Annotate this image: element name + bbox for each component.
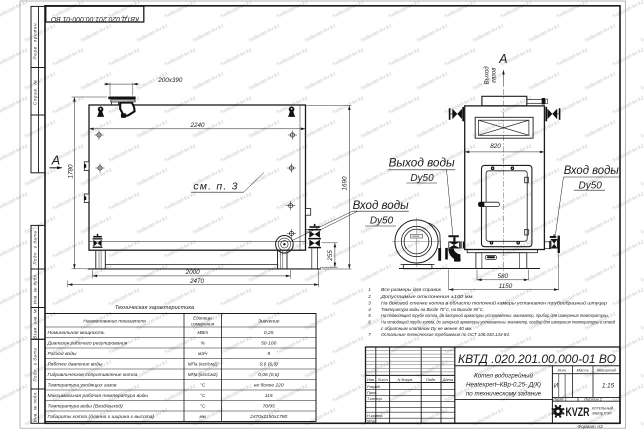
svg-text:Лит.: Лит. [557, 368, 567, 373]
svg-text:Лист: Лист [377, 377, 389, 382]
svg-text:Листов 2: Листов 2 [583, 397, 603, 402]
svg-text:Разраб.: Разраб. [367, 384, 381, 389]
svg-text:Единицы: Единицы [193, 316, 213, 321]
svg-text:см. п. 3: см. п. 3 [193, 181, 238, 193]
svg-text:1780: 1780 [68, 164, 75, 179]
svg-text:Dy50: Dy50 [370, 215, 394, 226]
svg-text:Расход воды: Расход воды [48, 351, 77, 357]
svg-text:Изм: Изм [367, 377, 375, 382]
svg-text:70/95: 70/95 [263, 404, 276, 410]
svg-text:Значение: Значение [258, 319, 280, 325]
svg-text:Техническая характеристика: Техническая характеристика [115, 305, 194, 311]
svg-text:мм: мм [200, 414, 207, 419]
svg-text:Все размеры для справок: Все размеры для справок [381, 287, 442, 292]
svg-text:580: 580 [497, 273, 508, 280]
svg-text:1150: 1150 [499, 283, 513, 290]
svg-text:1: 1 [368, 287, 371, 292]
svg-text:КВТД.020.201.00.000-01 ВО: КВТД.020.201.00.000-01 ВО [50, 15, 139, 22]
svg-text:Котел водогрейный: Котел водогрейный [474, 372, 533, 379]
svg-text:0,6 (6,0): 0,6 (6,0) [260, 362, 279, 368]
svg-text:0,25: 0,25 [264, 330, 274, 336]
svg-text:МПа (кгс/см2): МПа (кгс/см2) [188, 362, 218, 367]
svg-text:1:15: 1:15 [602, 383, 615, 390]
svg-text:Рабочее давление воды: Рабочее давление воды [48, 362, 103, 368]
svg-text:255: 255 [327, 250, 334, 262]
svg-text:2000: 2000 [185, 269, 201, 276]
svg-text:5: 5 [368, 313, 371, 318]
svg-text:3: 3 [368, 301, 371, 306]
svg-text:м3/ч: м3/ч [198, 351, 208, 356]
svg-text:На отводящей трубе котла, до з: На отводящей трубе котла, до запорной ар… [381, 319, 615, 325]
svg-text:°С: °С [200, 404, 206, 409]
svg-text:Н.контр.: Н.контр. [367, 413, 383, 418]
svg-text:115: 115 [265, 393, 273, 399]
svg-text:Температура уходящих газов: Температура уходящих газов [48, 383, 117, 389]
svg-text:Выход воды: Выход воды [389, 158, 456, 170]
svg-text:Температура воды (Вход/выход): Температура воды (Вход/выход) [48, 404, 124, 410]
svg-text:Перв. примен.: Перв. примен. [33, 21, 38, 60]
svg-text:не более 220: не более 220 [254, 383, 284, 389]
svg-text:Выход: Выход [485, 66, 491, 85]
svg-text:газов: газов [492, 68, 498, 83]
svg-text:Инв. № подл.: Инв. № подл. [33, 391, 38, 422]
svg-text:N докум.: N докум. [398, 377, 414, 382]
svg-text:Максимальная рабочая температу: Максимальная рабочая температура воды [48, 393, 149, 399]
svg-text:Подп.: Подп. [426, 377, 436, 382]
svg-text:Взам. инв. №: Взам. инв. № [33, 308, 38, 338]
svg-text:ЗАВОД РЭП: ЗАВОД РЭП [592, 411, 612, 415]
svg-text:2: 2 [367, 294, 371, 299]
svg-text:820: 820 [490, 143, 501, 150]
svg-text:7: 7 [368, 332, 371, 337]
svg-text:А: А [498, 52, 507, 66]
svg-text:Справ. №: Справ. № [33, 79, 38, 105]
svg-text:Лист 1: Лист 1 [552, 397, 567, 402]
svg-text:50-100: 50-100 [261, 341, 277, 347]
svg-text:Температура воды на Входе 70°: Температура воды на Входе 70°С, на Выход… [381, 307, 484, 312]
svg-text:200х390: 200х390 [157, 77, 183, 84]
svg-text:4: 4 [368, 307, 371, 312]
svg-text:Подп. и дата: Подп. и дата [33, 230, 38, 264]
svg-text:с обратным клапаном Dу не мен: с обратным клапаном Dу не менее 40 мм. [381, 326, 473, 331]
svg-text:Дата: Дата [442, 377, 454, 382]
svg-text:0,06 (0,6): 0,06 (0,6) [258, 372, 279, 378]
svg-text:1690: 1690 [341, 176, 348, 191]
svg-text:Утв.: Утв. [367, 419, 376, 424]
svg-text:Т.контр.: Т.контр. [367, 396, 383, 401]
svg-text:Пров.: Пров. [367, 390, 377, 395]
svg-text:Dy50: Dy50 [410, 173, 434, 184]
svg-text:Вход воды: Вход воды [564, 165, 620, 177]
svg-text:%: % [201, 341, 205, 346]
svg-text:Heatexpert–КВр-0,25- Д(К): Heatexpert–КВр-0,25- Д(К) [466, 381, 541, 388]
svg-text:И: И [554, 383, 559, 390]
svg-text:9: 9 [267, 351, 270, 357]
svg-text:2470х1150х1780: 2470х1150х1780 [249, 414, 287, 420]
svg-text:по техническому задание: по техническому задание [466, 390, 542, 397]
svg-text:КВТД .020.201.00.000-01 ВО: КВТД .020.201.00.000-01 ВО [458, 352, 616, 366]
svg-text:°С: °С [200, 383, 206, 388]
svg-text:Вход воды: Вход воды [353, 200, 410, 212]
svg-text:На подводящей трубе котла, д: На подводящей трубе котла, до запорной а… [381, 312, 609, 318]
svg-text:Гидравлическое сопротивление к: Гидравлическое сопротивление котла [48, 372, 138, 378]
svg-text:2240: 2240 [189, 122, 205, 129]
svg-text:Масса: Масса [577, 368, 590, 373]
svg-text:6: 6 [368, 320, 371, 325]
svg-text:МВт: МВт [197, 330, 208, 335]
svg-text:Подп. и дата: Подп. и дата [33, 347, 38, 381]
svg-text:°С: °С [200, 393, 206, 398]
svg-text:измерения: измерения [191, 322, 215, 327]
svg-text:Диапазон рабочего регулировани: Диапазон рабочего регулирования [47, 341, 128, 347]
svg-text:Инв. № дубл.: Инв. № дубл. [33, 273, 38, 304]
svg-text:На боковой стенке котла в обла: На боковой стенке котла в области топочн… [381, 300, 607, 306]
svg-text:Формат А3: Формат А3 [577, 424, 603, 429]
svg-text:Габариты котла (длинна х ширин: Габариты котла (длинна х ширина х высота… [48, 414, 155, 420]
svg-text:Остальные технические требован: Остальные технические требования по ОСТ … [381, 332, 510, 337]
svg-text:МПа (кгс/см2): МПа (кгс/см2) [188, 372, 218, 377]
svg-text:КОТЕЛЬНЫЙ: КОТЕЛЬНЫЙ [592, 406, 614, 410]
svg-text:Наименование показателя: Наименование показателя [83, 319, 146, 325]
svg-text:KVZR: KVZR [566, 407, 591, 419]
svg-text:Номинальная мощность: Номинальная мощность [48, 330, 106, 336]
svg-text:2470: 2470 [189, 278, 205, 285]
svg-text:Масштаб: Масштаб [597, 368, 616, 373]
svg-text:Допустимые отклонения ±100 мм: Допустимые отклонения ±100 мм. [380, 294, 474, 299]
svg-text:Dy50: Dy50 [579, 180, 603, 191]
svg-text:А: А [51, 153, 60, 167]
